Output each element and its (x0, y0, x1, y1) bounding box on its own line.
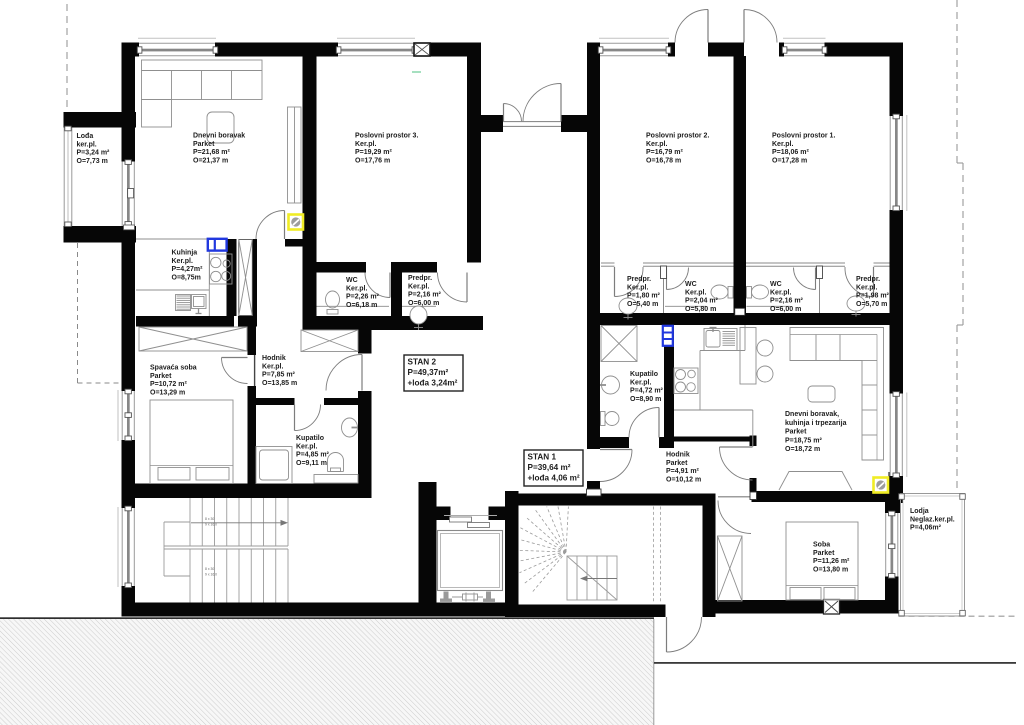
svg-text:Ker.pl.: Ker.pl. (355, 141, 376, 148)
svg-text:STAN 2: STAN 2 (408, 358, 437, 367)
svg-text:Lodja: Lodja (910, 508, 929, 515)
svg-text:Ker.pl.: Ker.pl. (856, 284, 877, 291)
svg-text:Dnevni boravak: Dnevni boravak (193, 133, 245, 140)
svg-text:O=18,72 m: O=18,72 m (785, 446, 820, 453)
svg-text:Poslovni prostor 2.: Poslovni prostor 2. (646, 133, 709, 140)
svg-text:P=3,24 m²: P=3,24 m² (77, 150, 111, 157)
svg-text:O=13,29 m: O=13,29 m (150, 389, 185, 396)
svg-text:O=17,76 m: O=17,76 m (355, 157, 390, 164)
svg-text:P=16,79 m²: P=16,79 m² (646, 149, 683, 156)
svg-text:P=7,85 m²: P=7,85 m² (262, 372, 296, 379)
svg-text:Kupatilo: Kupatilo (296, 435, 324, 442)
svg-text:9 x 16,0: 9 x 16,0 (205, 523, 217, 527)
svg-text:O=6,00 m: O=6,00 m (770, 306, 801, 313)
svg-text:Predpr.: Predpr. (408, 275, 432, 282)
svg-text:+lođa 4,06 m²: +lođa 4,06 m² (528, 474, 580, 483)
svg-text:O=17,28 m: O=17,28 m (772, 157, 807, 164)
svg-text:Kuhinja: Kuhinja (172, 250, 198, 257)
svg-text:Kupatilo: Kupatilo (630, 371, 658, 378)
svg-text:O=8,75m: O=8,75m (172, 274, 201, 281)
svg-text:Ker.pl.: Ker.pl. (685, 289, 706, 296)
svg-text:O=13,80 m: O=13,80 m (813, 566, 848, 573)
svg-text:O=16,78 m: O=16,78 m (646, 157, 681, 164)
svg-text:Ker.pl.: Ker.pl. (262, 363, 283, 370)
svg-text:P=1,98 m²: P=1,98 m² (856, 293, 890, 300)
svg-text:Ker.pl.: Ker.pl. (296, 443, 317, 450)
svg-text:Parket: Parket (813, 550, 835, 557)
svg-text:O=10,12 m: O=10,12 m (666, 476, 701, 483)
svg-text:Lođa: Lođa (77, 133, 94, 140)
svg-text:Predpr.: Predpr. (627, 276, 651, 283)
svg-text:kuhinja i trpezarija: kuhinja i trpezarija (785, 420, 847, 427)
svg-text:Predpr.: Predpr. (856, 276, 880, 283)
svg-text:P=2,16 m²: P=2,16 m² (408, 292, 442, 299)
svg-text:9 x 16,0: 9 x 16,0 (205, 573, 217, 577)
svg-text:Ker.pl.: Ker.pl. (646, 141, 667, 148)
svg-text:O=6,00 m: O=6,00 m (408, 300, 439, 307)
svg-text:O=8,90 m: O=8,90 m (630, 396, 661, 403)
svg-text:P=39,64 m²: P=39,64 m² (528, 463, 571, 472)
svg-text:P=49,37m²: P=49,37m² (408, 368, 449, 377)
svg-text:Poslovni prostor 1.: Poslovni prostor 1. (772, 133, 835, 140)
svg-text:Neglaz.ker.pl.: Neglaz.ker.pl. (910, 516, 955, 523)
svg-text:P=11,26 m²: P=11,26 m² (813, 558, 850, 565)
svg-text:P=4,72 m²: P=4,72 m² (630, 388, 664, 395)
svg-text:+lođa 3,24m²: +lođa 3,24m² (408, 379, 458, 388)
svg-text:STAN 1: STAN 1 (528, 453, 557, 462)
svg-text:Ker.pl.: Ker.pl. (408, 283, 429, 290)
svg-text:O=21,37 m: O=21,37 m (193, 157, 228, 164)
svg-text:P=4,27m²: P=4,27m² (172, 266, 204, 273)
svg-text:P=18,75 m²: P=18,75 m² (785, 437, 822, 444)
svg-text:Hodnik: Hodnik (666, 452, 690, 459)
svg-text:Ker.pl.: Ker.pl. (627, 284, 648, 291)
svg-text:Ker.pl.: Ker.pl. (630, 379, 651, 386)
svg-text:Parket: Parket (785, 429, 807, 436)
svg-text:Ker.pl.: Ker.pl. (770, 289, 791, 296)
svg-text:P=4,91 m²: P=4,91 m² (666, 468, 700, 475)
svg-text:O=9,11 m: O=9,11 m (296, 460, 327, 467)
svg-text:O=13,85 m: O=13,85 m (262, 380, 297, 387)
svg-text:Ker.pl.: Ker.pl. (346, 285, 367, 292)
svg-text:Ker.pl.: Ker.pl. (772, 141, 793, 148)
svg-text:WC: WC (770, 281, 782, 288)
svg-text:Poslovni prostor 3.: Poslovni prostor 3. (355, 133, 418, 140)
svg-text:P=1,80 m²: P=1,80 m² (627, 293, 661, 300)
svg-text:Parket: Parket (666, 460, 688, 467)
svg-text:O=6,18 m: O=6,18 m (346, 302, 377, 309)
svg-text:WC: WC (685, 281, 697, 288)
svg-text:8 x 30: 8 x 30 (205, 567, 214, 571)
svg-text:P=2,26 m²: P=2,26 m² (346, 294, 380, 301)
svg-text:Parket: Parket (150, 373, 172, 380)
svg-text:Parket: Parket (193, 141, 215, 148)
svg-text:P=2,16 m²: P=2,16 m² (770, 298, 804, 305)
svg-text:P=21,68 m²: P=21,68 m² (193, 149, 230, 156)
svg-text:Spavaća soba: Spavaća soba (150, 365, 197, 372)
svg-text:WC: WC (346, 277, 358, 284)
svg-text:ker.pl.: ker.pl. (77, 141, 97, 148)
svg-text:O=5,80 m: O=5,80 m (685, 306, 716, 313)
svg-text:8 x 30: 8 x 30 (205, 517, 214, 521)
svg-text:Ker.pl.: Ker.pl. (172, 258, 193, 265)
svg-text:P=18,06 m²: P=18,06 m² (772, 149, 809, 156)
svg-text:P=4,85 m²: P=4,85 m² (296, 452, 330, 459)
svg-text:P=10,72 m²: P=10,72 m² (150, 381, 187, 388)
svg-text:Hodnik: Hodnik (262, 355, 286, 362)
svg-text:P=19,29 m²: P=19,29 m² (355, 149, 392, 156)
svg-text:O=5,70 m: O=5,70 m (856, 301, 887, 308)
svg-text:Soba: Soba (813, 542, 830, 549)
svg-text:O=5,40 m: O=5,40 m (627, 301, 658, 308)
svg-text:O=7,73 m: O=7,73 m (77, 158, 108, 165)
svg-text:P=4,06m²: P=4,06m² (910, 525, 942, 532)
svg-text:P=2,04 m²: P=2,04 m² (685, 298, 719, 305)
svg-text:Dnevni boravak,: Dnevni boravak, (785, 411, 839, 418)
